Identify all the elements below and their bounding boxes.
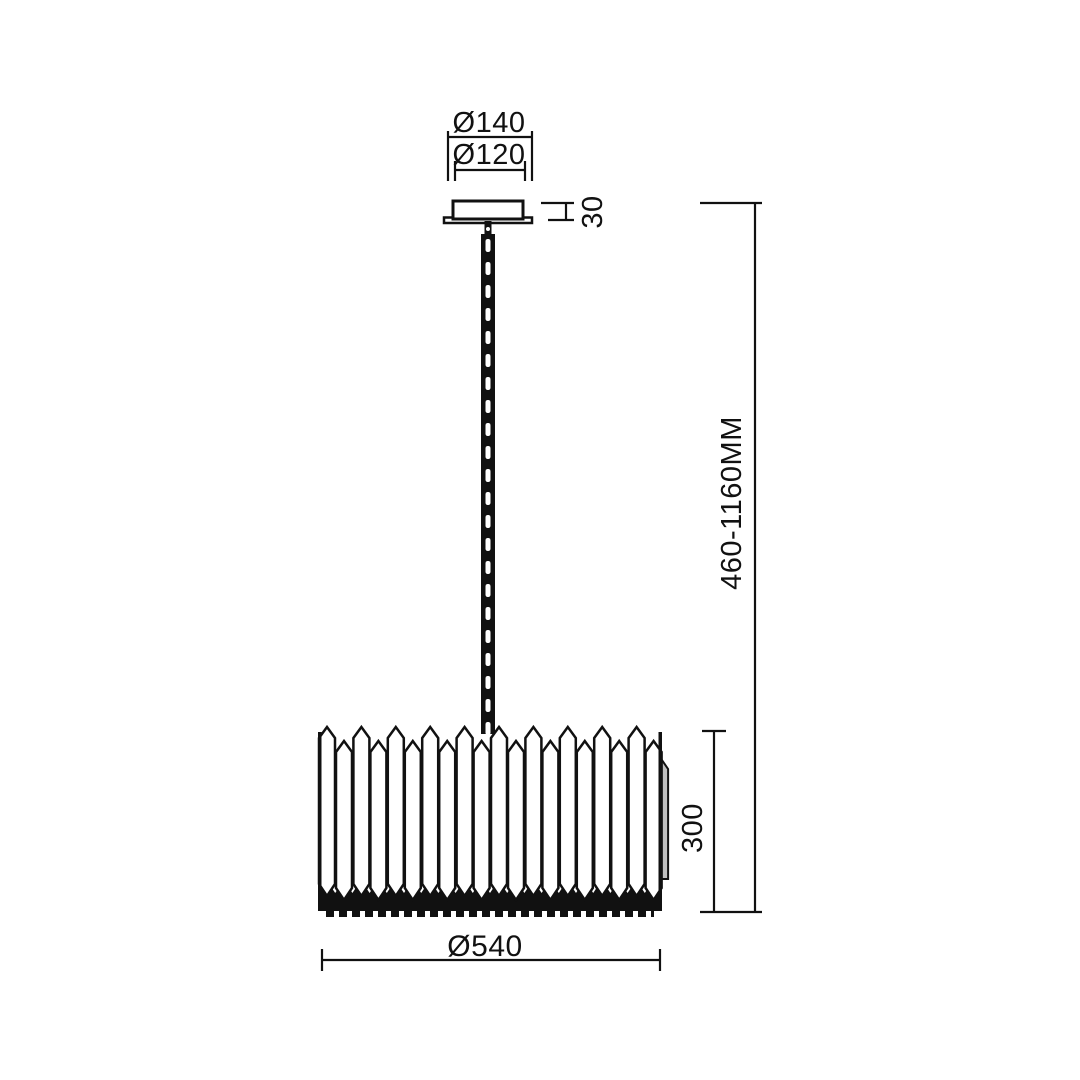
- ceiling-canopy: [444, 201, 532, 223]
- shade-left-edge: [318, 732, 322, 910]
- chain-stem-hole: [486, 227, 490, 231]
- shade-front-strips: [319, 727, 662, 900]
- crystal-shade-drum: [318, 727, 668, 914]
- dim-canopy-outer-label: Ø140: [453, 107, 526, 139]
- dim-canopy-inner-label: Ø120: [453, 139, 526, 171]
- technical-drawing-page: Ø140 Ø120 30 460-1160MM 300 Ø540: [0, 0, 1080, 1080]
- chain-links: [481, 234, 495, 734]
- shade-right-edge: [659, 732, 663, 910]
- canopy-body: [453, 201, 523, 219]
- dim-canopy-height-label: 30: [577, 195, 609, 228]
- pendant-lamp-dimension-drawing: Ø140 Ø120 30 460-1160MM 300 Ø540: [0, 0, 1080, 1080]
- dim-canopy-height: [541, 203, 574, 220]
- dim-hanging-height-label: 460-1160MM: [716, 416, 748, 590]
- dim-shade-height-label: 300: [677, 803, 709, 853]
- suspension-chain: [481, 221, 495, 734]
- dim-shade-diameter-label: Ø540: [447, 930, 522, 963]
